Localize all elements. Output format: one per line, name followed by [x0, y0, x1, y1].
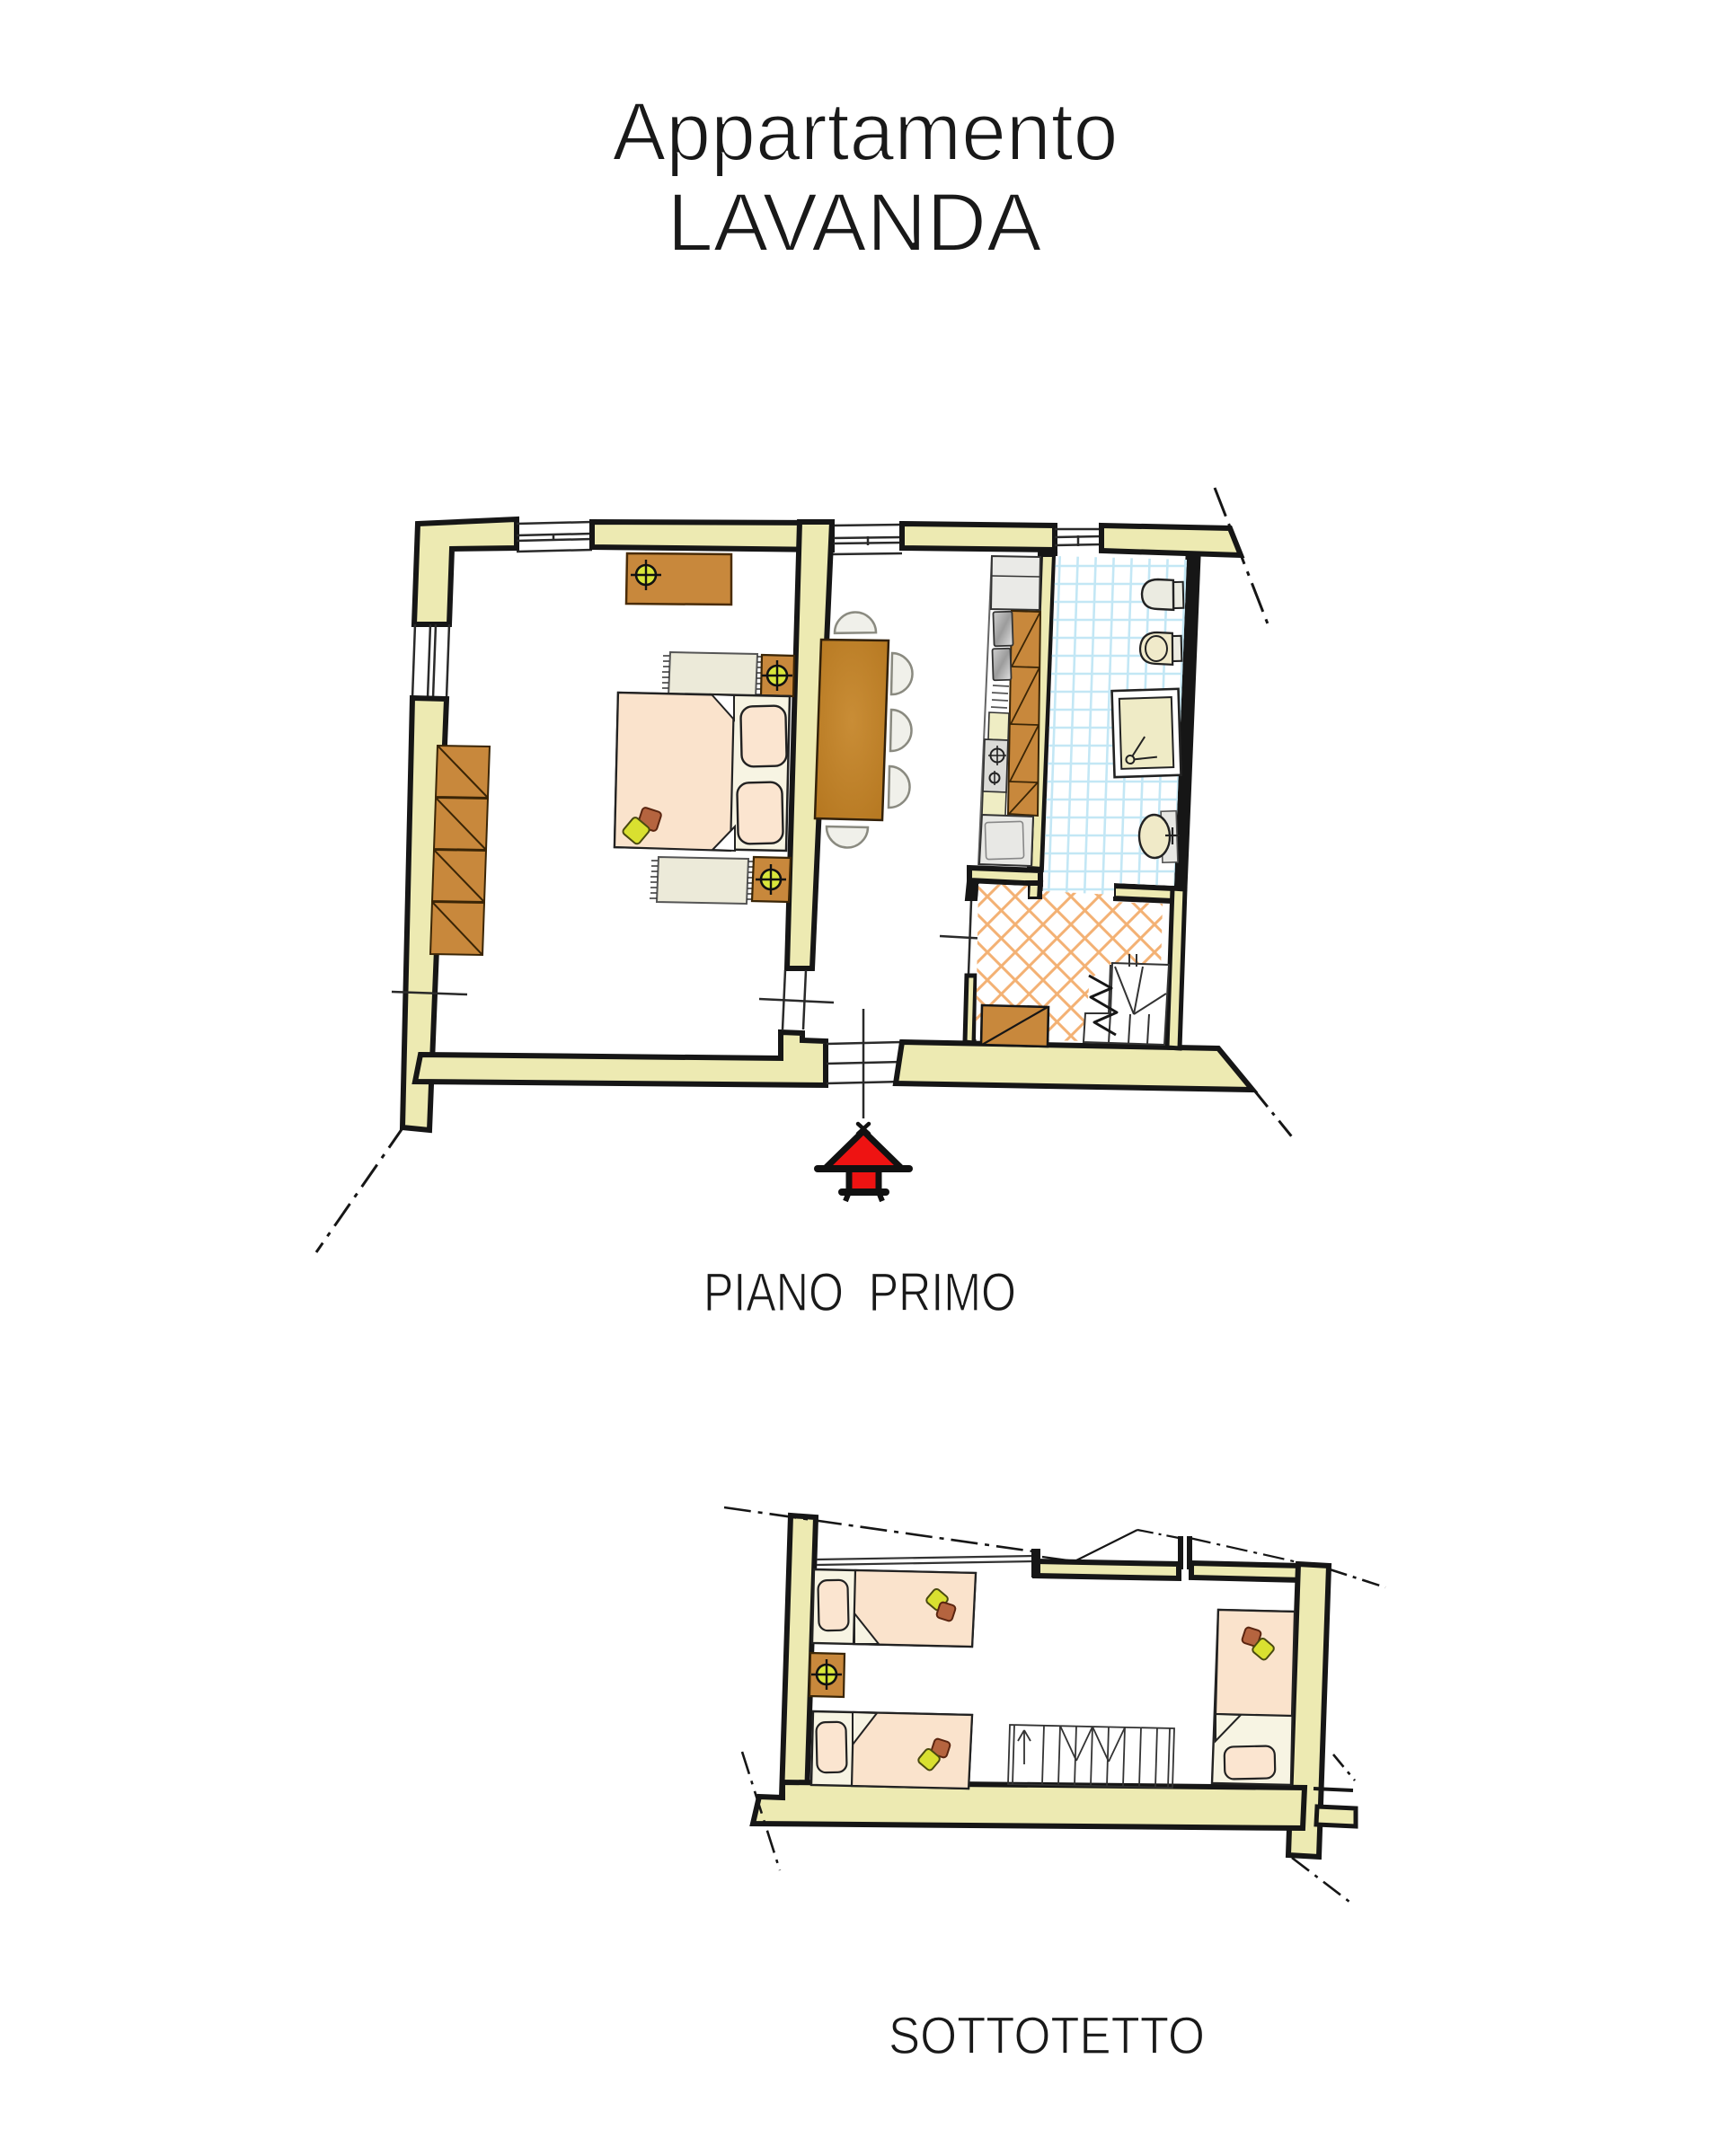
- svg-text:PIANO PRIMO: PIANO PRIMO: [703, 1262, 1016, 1322]
- svg-text:Appartamento: Appartamento: [613, 86, 1119, 178]
- svg-text:LAVANDA: LAVANDA: [668, 177, 1043, 269]
- svg-text:SOTTOTETTO: SOTTOTETTO: [889, 2007, 1205, 2065]
